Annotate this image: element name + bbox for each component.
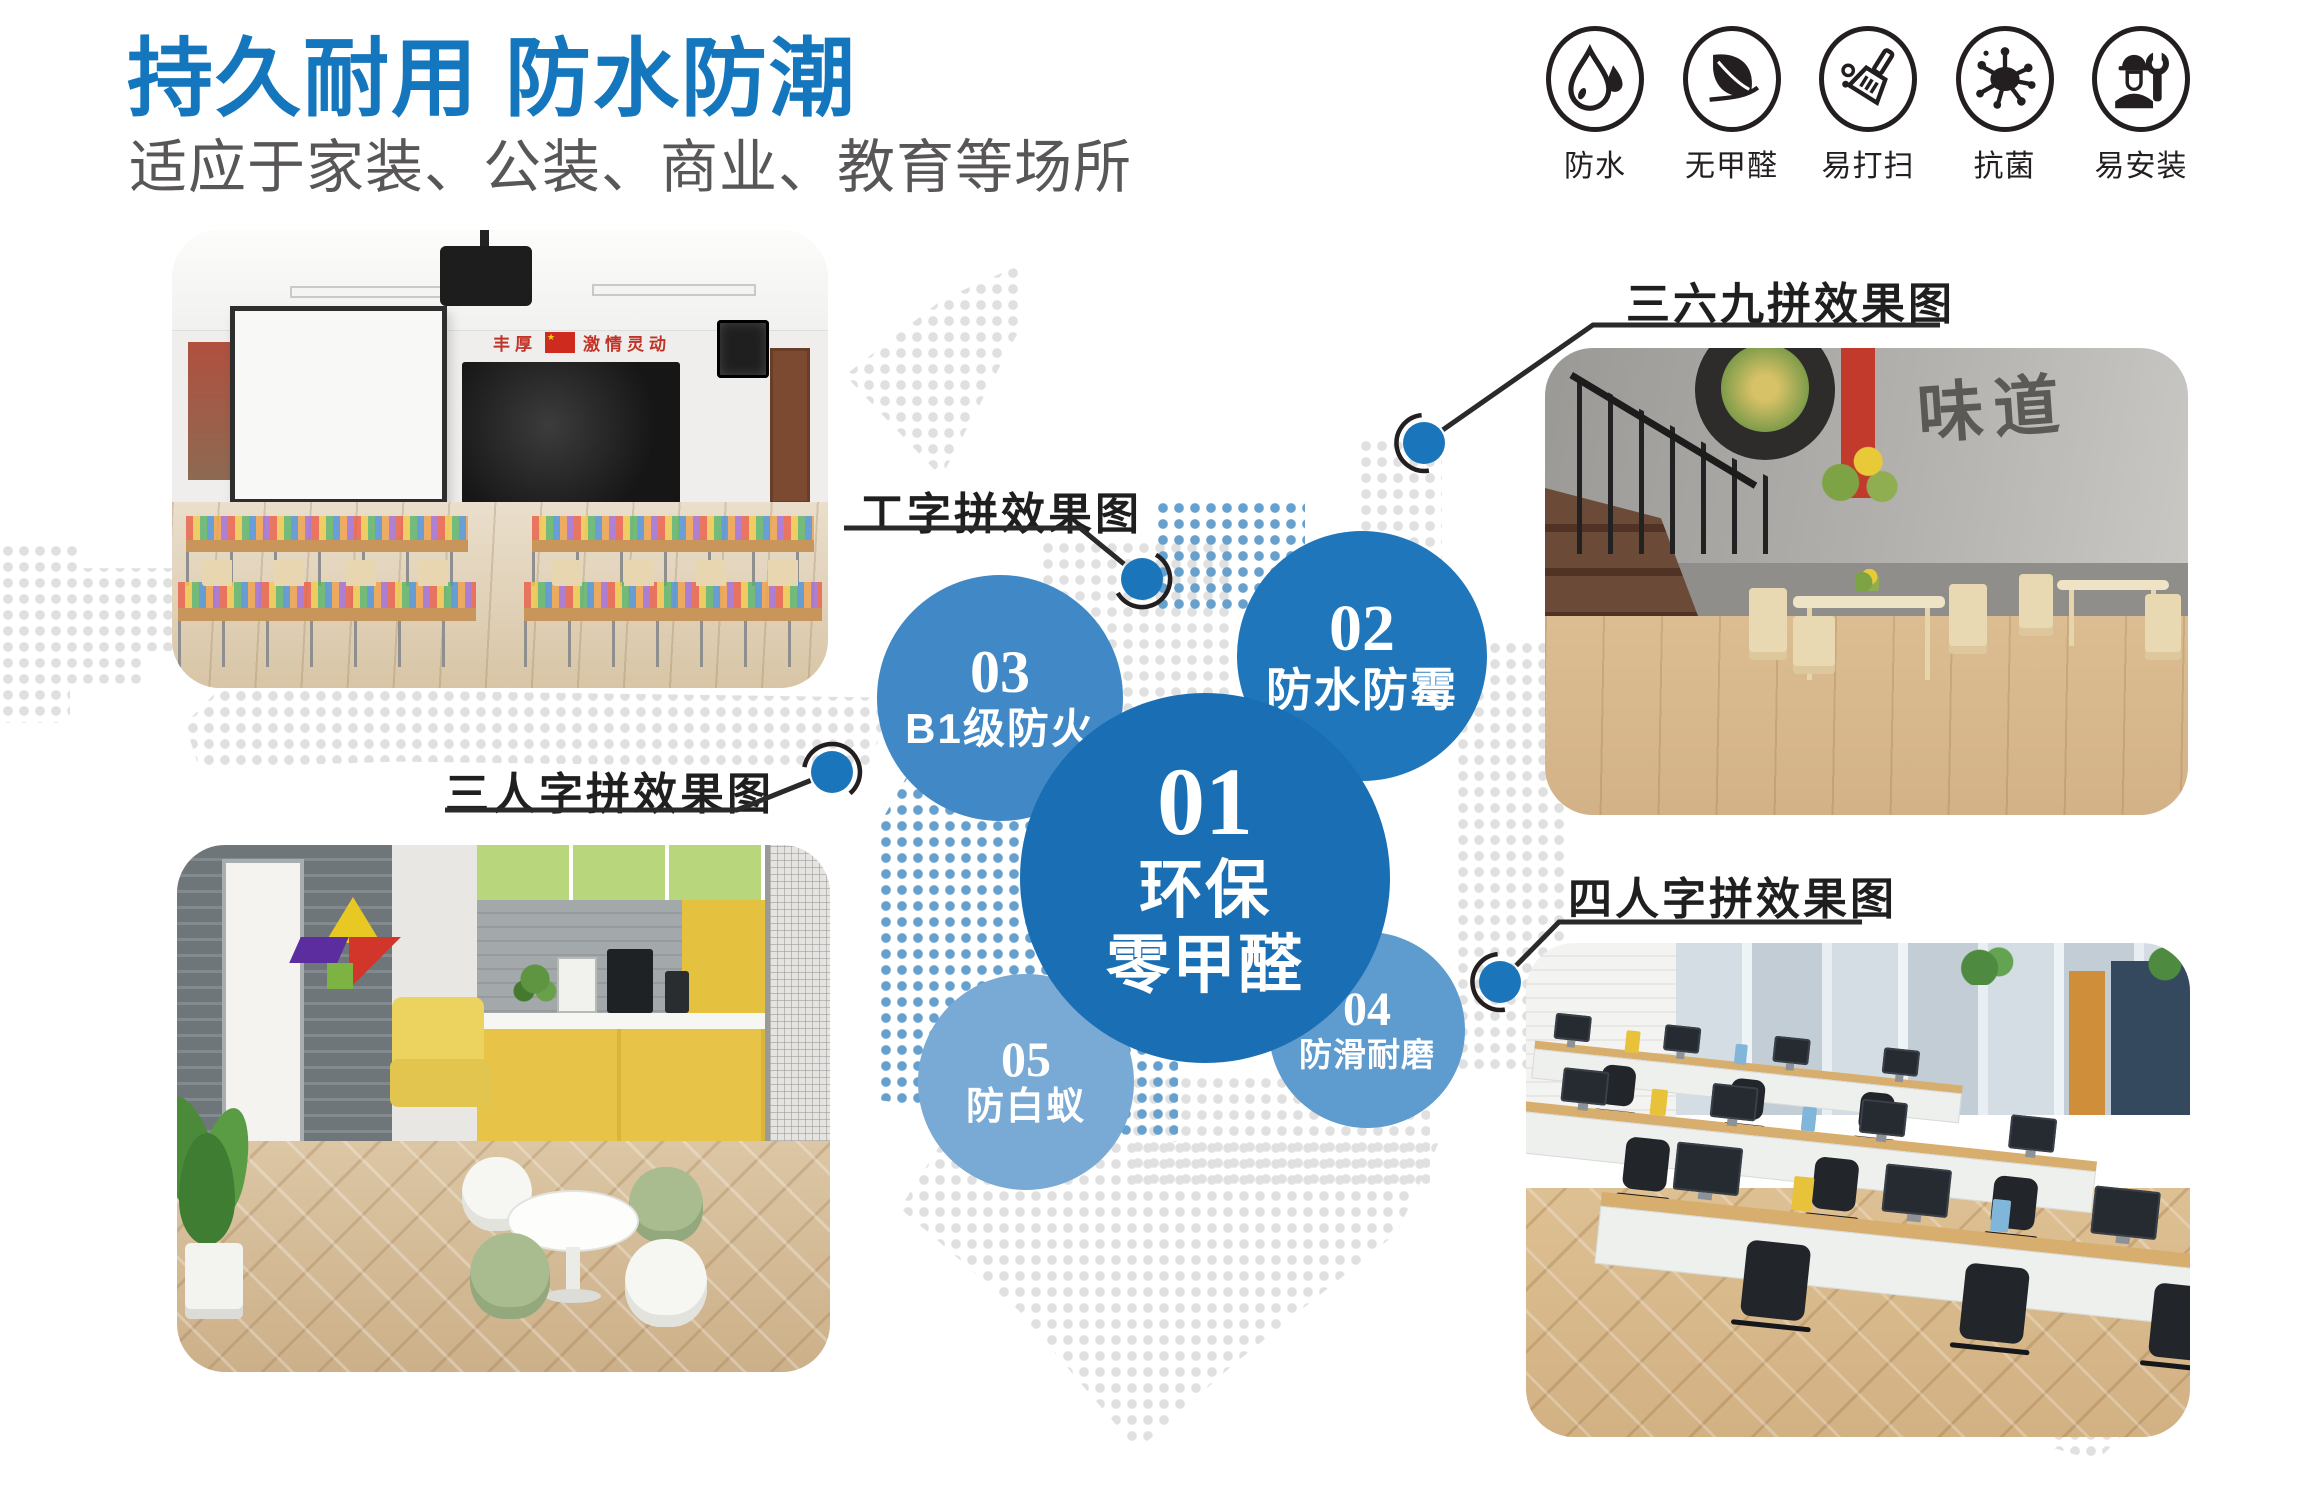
bubble-number: 03: [970, 641, 1030, 704]
classroom-desk-legs: [178, 621, 476, 667]
coffee-machine: [607, 949, 653, 1013]
lounge-yellow-sofa: [390, 1059, 492, 1107]
lounge-tub-chair-green: [629, 1167, 703, 1243]
restaurant-chair: [1793, 616, 1835, 674]
classroom-slogan-left: 丰厚: [493, 330, 537, 355]
feature-easy-install: 易安装: [2078, 26, 2204, 185]
lounge-lower-cabinets: [477, 1029, 767, 1141]
callout-i-pattern-leader: [830, 460, 1190, 640]
office-monitor: [1560, 1067, 1609, 1106]
callout-369-pattern-leader: [1390, 290, 2010, 490]
classroom-desk-legs: [524, 621, 822, 667]
restaurant-wood-floor: [1545, 616, 2188, 815]
installer-wrench-icon: [2092, 26, 2190, 132]
restaurant-chair: [1749, 588, 1787, 660]
poster-page: 持久耐用 防水防潮 适应于家装、公装、商业、教育等场所 防水 无甲醛: [0, 0, 2304, 1485]
bubble-label-line2: 零甲醛: [1106, 928, 1304, 1004]
classroom-desk: [524, 608, 822, 621]
office-chair: [1740, 1239, 1812, 1321]
office-navy-cabinet: [2111, 961, 2190, 1115]
office-plant: [1954, 943, 2018, 985]
bubble-label: B1级防火: [905, 704, 1095, 754]
classroom-desk-books: [532, 516, 814, 540]
restaurant-table: [2057, 580, 2169, 590]
water-drop-icon: [1546, 26, 1644, 132]
office-monitor: [1881, 1163, 1952, 1218]
office-monitor: [1673, 1142, 1744, 1197]
classroom-chairs: [202, 560, 452, 586]
lounge-doorway: [222, 859, 304, 1145]
classroom-desk: [532, 540, 814, 552]
callout-herringbone4-leader: [1455, 900, 1905, 1030]
classroom-poster: [188, 342, 230, 480]
page-subtitle: 适应于家装、公装、商业、教育等场所: [129, 120, 1132, 204]
office-monitor: [1882, 1047, 1921, 1077]
dots-under-bubbles: [900, 1140, 1440, 1450]
page-title: 持久耐用 防水防潮: [127, 8, 857, 133]
classroom-light-strip: [592, 284, 756, 296]
bubble-label: 防滑耐磨: [1299, 1035, 1435, 1075]
classroom-door: [770, 348, 810, 504]
classroom-slogan: 丰厚 ★ 激情灵动: [467, 330, 697, 355]
feature-easy-clean: 易打扫: [1805, 26, 1931, 185]
classroom-desk: [178, 608, 476, 621]
lounge-mesh-partition: [765, 845, 830, 1190]
classroom-desk: [186, 540, 468, 552]
restaurant-table: [1793, 596, 1945, 608]
bubble-label-line1: 环保: [1139, 853, 1271, 929]
photo-lounge: [177, 845, 830, 1372]
restaurant-chair: [1949, 584, 1987, 654]
office-monitor: [2090, 1185, 2161, 1240]
restaurant-table-plant: [1855, 569, 1879, 591]
feature-label: 防水: [1564, 141, 1626, 185]
lounge-tangram-art: [327, 963, 353, 989]
office-blue-folder: [1734, 1044, 1748, 1065]
lounge-yellow-panel: [682, 900, 767, 1014]
lounge-tub-chair-white: [625, 1239, 707, 1327]
office-monitor: [1710, 1083, 1759, 1122]
office-monitor: [1859, 1099, 1908, 1138]
bubble-01: 01 环保 零甲醛: [1020, 693, 1390, 1063]
counter-plant: [513, 963, 557, 1003]
restaurant-table-leg: [2069, 590, 2074, 646]
bubble-number: 05: [1001, 1033, 1051, 1086]
restaurant-table-leg: [1925, 608, 1930, 680]
classroom-projector: [440, 246, 532, 306]
classroom-clock-box: [717, 320, 769, 378]
bubble-label: 防白蚁: [966, 1085, 1086, 1131]
feature-waterproof: 防水: [1532, 26, 1658, 185]
classroom-desk-books: [186, 516, 468, 540]
callout-herringbone3-leader: [425, 740, 875, 860]
kettle: [665, 971, 689, 1013]
feature-label: 易安装: [2095, 141, 2188, 185]
dots-above-bubble3: [845, 265, 1020, 477]
office-orange-door: [2069, 971, 2105, 1115]
restaurant-chair: [2145, 594, 2181, 660]
bubble-number: 01: [1157, 752, 1253, 853]
leaf-icon: [1683, 26, 1781, 132]
germ-icon: [1956, 26, 2054, 132]
dots-map-left: [0, 543, 175, 723]
lounge-plant-pot: [185, 1243, 243, 1319]
lounge-table-base: [545, 1289, 601, 1303]
office-blue-folder: [1990, 1199, 2011, 1233]
feature-antibacterial: 抗菌: [1942, 26, 2068, 185]
feature-no-formaldehyde: 无甲醛: [1669, 26, 1795, 185]
restaurant-chair: [2019, 574, 2053, 636]
coffee-machine: [557, 957, 597, 1013]
classroom-blackboard: [462, 362, 680, 504]
china-flag: ★: [545, 332, 575, 353]
classroom-projection-screen: [230, 306, 447, 504]
office-chair: [2148, 1282, 2190, 1362]
bubble-number: 02: [1329, 594, 1395, 663]
office-blue-folder: [1801, 1106, 1817, 1131]
feature-label: 无甲醛: [1685, 141, 1778, 185]
photo-classroom: 丰厚 ★ 激情灵动: [172, 230, 828, 688]
feature-label: 抗菌: [1974, 141, 2036, 185]
lounge-tub-chair-green: [470, 1233, 550, 1319]
feature-icon-row: 防水 无甲醛: [1532, 26, 2204, 185]
office-yellow-folder: [1791, 1176, 1814, 1212]
classroom-chairs: [552, 560, 802, 586]
feature-label: 易打扫: [1822, 141, 1915, 185]
office-plant: [2140, 943, 2190, 981]
classroom-slogan-right: 激情灵动: [583, 330, 671, 355]
office-monitor: [1772, 1036, 1811, 1066]
bubble-label: 防水防霉: [1266, 663, 1458, 718]
lounge-counter: [467, 1013, 773, 1029]
lounge-table-pedestal: [566, 1247, 580, 1293]
broom-icon: [1819, 26, 1917, 132]
office-chair: [1959, 1262, 2031, 1344]
office-yellow-folder: [1624, 1030, 1640, 1053]
office-yellow-folder: [1649, 1089, 1668, 1117]
office-monitor: [2008, 1114, 2057, 1153]
